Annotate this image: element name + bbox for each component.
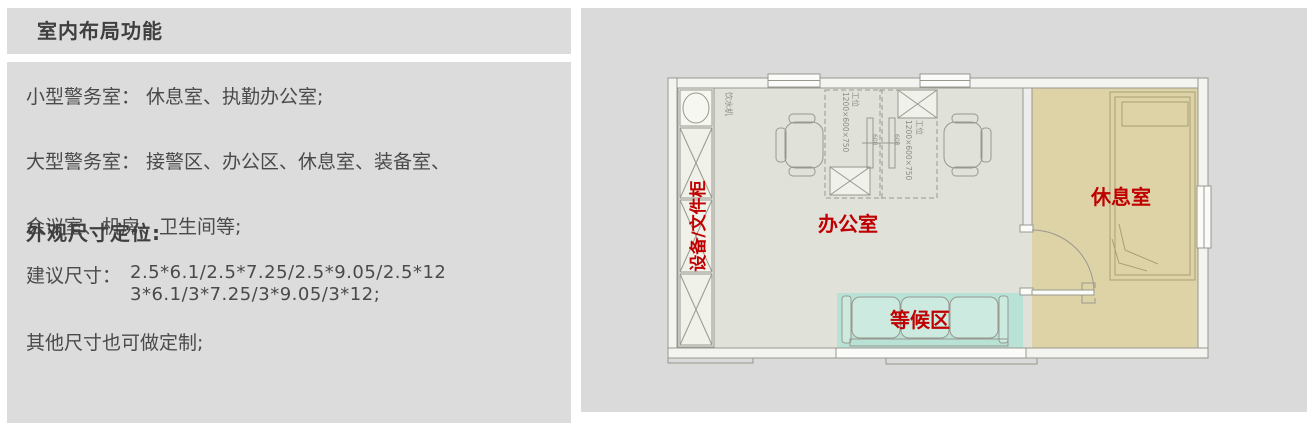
size-options-line1: 2.5*6.1/2.5*7.25/2.5*9.05/2.5*12 — [130, 262, 446, 283]
size-options-line2: 3*6.1/3*7.25/3*9.05/3*12; — [130, 284, 380, 305]
size-heading: 外观尺寸定位: — [26, 217, 161, 246]
entrance-opening — [836, 348, 1026, 358]
sofa-armrest-left — [842, 296, 851, 343]
workstation1-dims: 1200×600×750 — [841, 92, 850, 153]
text-line-large-station: 大型警务室： 接警区、办公区、休息室、装备室、 — [26, 151, 450, 173]
floor-plan: 饮水机 工位 1200×600×750 工位 1200×600×750 600 … — [581, 8, 1307, 412]
workstation2-name: 工位 — [915, 120, 925, 135]
interior-wall — [1023, 88, 1032, 225]
door-leaf — [1032, 290, 1094, 295]
workstation1-name: 工位 — [851, 92, 861, 107]
cabinet-label: 设备/文件柜 — [688, 180, 709, 271]
floor-plan-panel: 饮水机 工位 1200×600×750 工位 1200×600×750 600 … — [581, 8, 1307, 412]
door-jamb-top — [1020, 225, 1033, 232]
page-title: 室内布局功能 — [37, 8, 163, 54]
rest-room-label: 休息室 — [1090, 185, 1151, 209]
left-panel-body: 小型警务室： 休息室、执勤办公室; 大型警务室： 接警区、办公区、休息室、装备室… — [7, 62, 571, 423]
left-panel-header: 室内布局功能 — [7, 8, 571, 54]
monitor-right-size: 600 — [893, 134, 900, 146]
text-line-small-station: 小型警务室： 休息室、执勤办公室; — [26, 86, 323, 108]
water-dispenser-label: 饮水机 — [724, 92, 734, 116]
monitor-left-size: 600 — [871, 134, 878, 146]
custom-size-note: 其他尺寸也可做定制; — [26, 328, 203, 355]
left-step — [668, 358, 753, 363]
waiting-area-label: 等候区 — [890, 308, 950, 332]
suggested-size-label: 建议尺寸： — [26, 261, 121, 288]
workstation2-dims: 1200×600×750 — [904, 120, 913, 181]
sofa-armrest-right — [999, 296, 1008, 343]
door-jamb-bottom — [1020, 288, 1033, 295]
wall-left — [668, 78, 677, 358]
entrance-step — [886, 358, 1037, 364]
sofa-cushion — [950, 297, 998, 338]
water-dispenser-box — [680, 90, 712, 126]
office-label: 办公室 — [818, 212, 878, 236]
